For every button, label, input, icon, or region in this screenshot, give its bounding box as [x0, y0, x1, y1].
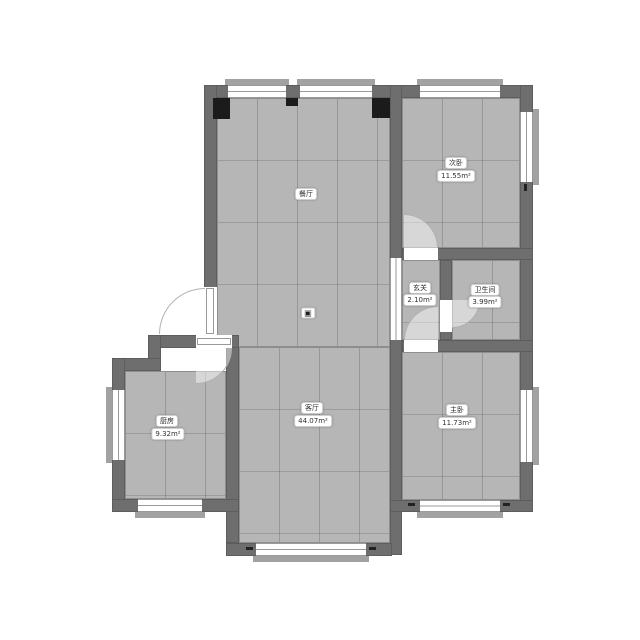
room-area-hallway: 2.10m² [403, 294, 436, 306]
wall-tick [524, 184, 527, 191]
room-label-dining[interactable]: 餐厅 [295, 188, 317, 200]
window[interactable] [300, 85, 372, 98]
wall-tick [369, 547, 376, 550]
window[interactable] [520, 112, 533, 182]
window-sill [533, 109, 539, 185]
window[interactable] [420, 85, 500, 98]
room-area-bedroom2: 11.55m² [437, 170, 475, 182]
wall-tick [503, 503, 510, 506]
window-sill [297, 79, 375, 85]
window[interactable] [256, 543, 366, 556]
column-pillar [213, 98, 230, 119]
window-sill [417, 512, 503, 518]
room-label-living[interactable]: 客厅 [301, 402, 323, 414]
wall-tick [246, 547, 253, 550]
room-label-bedroom2[interactable]: 次卧 [445, 157, 467, 169]
room-area-living: 44.07m² [294, 415, 332, 427]
room-floor-living-lower[interactable] [239, 347, 390, 543]
wall-tick [408, 503, 415, 506]
room-label-master[interactable]: 主卧 [446, 404, 468, 416]
bedroom2-door-opening[interactable] [404, 248, 438, 260]
floor-plan-canvas: 餐厅 ▣ 客厅 44.07m² 厨房 9.32m² 玄关 2.10m² 卫生间 … [0, 0, 640, 640]
room-area-master: 11.73m² [438, 417, 476, 429]
window[interactable] [420, 500, 500, 512]
window[interactable] [228, 85, 286, 98]
window-sill [135, 512, 205, 518]
room-label-bathroom[interactable]: 卫生间 [471, 284, 500, 296]
camera-marker-icon[interactable]: ▣ [301, 308, 315, 319]
column-pillar [372, 98, 390, 118]
room-area-bathroom: 3.99m² [468, 296, 501, 308]
bathroom-door-opening[interactable] [440, 300, 452, 332]
window[interactable] [138, 499, 202, 512]
window-sill [417, 79, 503, 85]
window-sill [106, 387, 112, 463]
window-sill [253, 556, 369, 562]
master-door-opening[interactable] [404, 340, 438, 352]
column-pillar [286, 98, 298, 106]
entry-door-arc[interactable] [159, 288, 205, 334]
window[interactable] [520, 390, 533, 462]
room-label-hallway[interactable]: 玄关 [409, 282, 431, 294]
room-area-kitchen: 9.32m² [151, 428, 184, 440]
window-sill [225, 79, 289, 85]
room-label-kitchen[interactable]: 厨房 [156, 415, 178, 427]
hallway-pass-opening[interactable] [390, 258, 402, 340]
kitchen-door-leaf[interactable] [197, 338, 231, 345]
entry-door-leaf[interactable] [206, 288, 214, 334]
window-sill [533, 387, 539, 465]
window[interactable] [112, 390, 125, 460]
